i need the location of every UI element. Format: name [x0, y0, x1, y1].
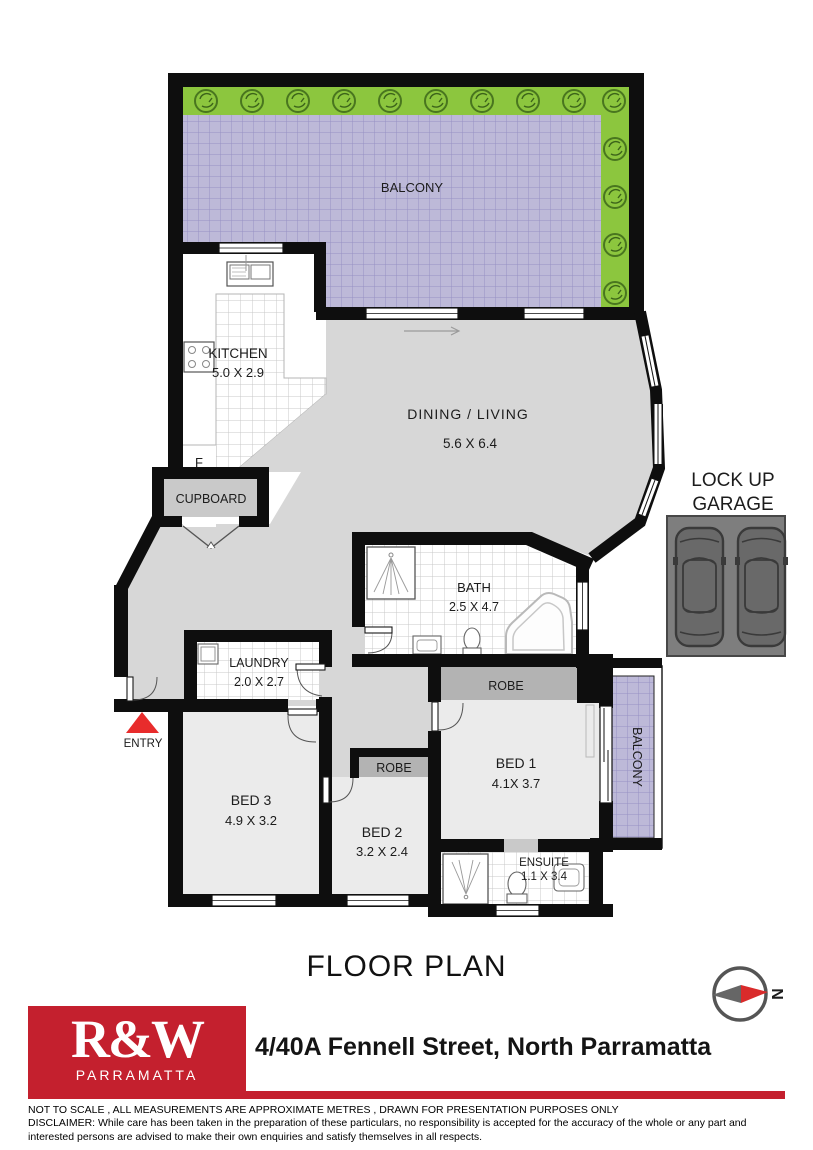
- laundry-label: LAUNDRY: [229, 656, 289, 670]
- page-title: FLOOR PLAN: [0, 950, 813, 984]
- garage-label-line1: LOCK UP: [691, 470, 774, 491]
- garage-label-line2: GARAGE: [692, 494, 773, 515]
- compass-icon: N: [698, 958, 793, 1030]
- laundry-dims: 2.0 X 2.7: [234, 675, 284, 689]
- agency-logo-brand: R&W: [71, 1014, 203, 1065]
- car-icon: [673, 528, 726, 646]
- ensuite-door-sill: [504, 839, 538, 852]
- robe-bed2-label: ROBE: [376, 761, 411, 775]
- balcony-top-label: BALCONY: [381, 180, 443, 195]
- vanity-icon: [413, 636, 441, 654]
- bed3: BED 3 4.9 X 3.2: [183, 712, 320, 895]
- lock-up-garage: LOCK UP GARAGE: [667, 470, 788, 656]
- balcony-right-label: BALCONY: [630, 727, 644, 787]
- bed3-window-icon: [212, 895, 276, 906]
- disclaimer-text: DISCLAIMER: While care has been taken in…: [28, 1117, 785, 1145]
- robe-bed1-label: ROBE: [488, 679, 523, 693]
- ensuite-shower-icon: [443, 854, 488, 904]
- compass-north-label: N: [768, 988, 785, 1000]
- shower-icon: [367, 547, 415, 599]
- ensuite-window-icon: [496, 905, 539, 916]
- bed3-dims: 4.9 X 3.2: [225, 813, 277, 828]
- bed1-label: BED 1: [496, 755, 537, 771]
- ensuite: ENSUITE 1.1 X 3.4: [441, 852, 589, 905]
- bath-window-icon: [577, 582, 588, 630]
- bed3-label: BED 3: [231, 792, 272, 808]
- dining-window2-icon: [524, 308, 584, 319]
- entry-label: ENTRY: [124, 738, 163, 750]
- ensuite-label: ENSUITE: [519, 857, 569, 869]
- bed1-slider-icon: [600, 706, 612, 803]
- bath-label: BATH: [457, 580, 491, 595]
- bed2-window-icon: [347, 895, 409, 906]
- bed1-dims: 4.1X 3.7: [492, 776, 540, 791]
- kitchen-sink-icon: [227, 262, 273, 286]
- cupboard-label: CUPBOARD: [176, 492, 247, 506]
- dining-dims: 5.6 X 6.4: [443, 436, 498, 451]
- entry-arrow-icon: [126, 712, 159, 733]
- agency-logo-sub: PARRAMATTA: [76, 1067, 199, 1083]
- dining-window-icon: [366, 308, 458, 319]
- bath-dims: 2.5 X 4.7: [449, 600, 499, 614]
- divider-bar: [28, 1091, 785, 1099]
- kitchen-label: KITCHEN: [208, 346, 267, 361]
- bed2: BED 2 3.2 X 2.4: [332, 777, 428, 895]
- ensuite-dims: 1.1 X 3.4: [521, 871, 568, 883]
- floor-plan-drawing: BALCONY KITCHEN 5.0 X 2.9 F DINING / LIV…: [0, 0, 813, 950]
- floor-plan-page: BALCONY KITCHEN 5.0 X 2.9 F DINING / LIV…: [0, 0, 813, 1150]
- entry-marker: ENTRY: [124, 712, 163, 750]
- kitchen-dims: 5.0 X 2.9: [212, 365, 264, 380]
- dining-label: DINING / LIVING: [407, 406, 529, 422]
- toilet-icon: [463, 628, 481, 656]
- cupboard: CUPBOARD: [164, 479, 257, 517]
- laundry: LAUNDRY 2.0 X 2.7: [197, 642, 319, 700]
- car-icon: [735, 528, 788, 646]
- property-address: 4/40A Fennell Street, North Parramatta: [255, 1033, 800, 1062]
- bed1: BED 1 4.1X 3.7: [437, 700, 601, 840]
- agency-logo: R&W PARRAMATTA: [28, 1006, 246, 1091]
- bathroom: BATH 2.5 X 4.7: [365, 545, 580, 656]
- scale-note: NOT TO SCALE , ALL MEASUREMENTS ARE APPR…: [28, 1104, 788, 1116]
- balcony-right: BALCONY: [610, 666, 662, 848]
- laundry-tub-icon: [198, 644, 218, 664]
- bed2-dims: 3.2 X 2.4: [356, 844, 408, 859]
- bed2-label: BED 2: [362, 824, 403, 840]
- kitchen-window-icon: [219, 243, 283, 253]
